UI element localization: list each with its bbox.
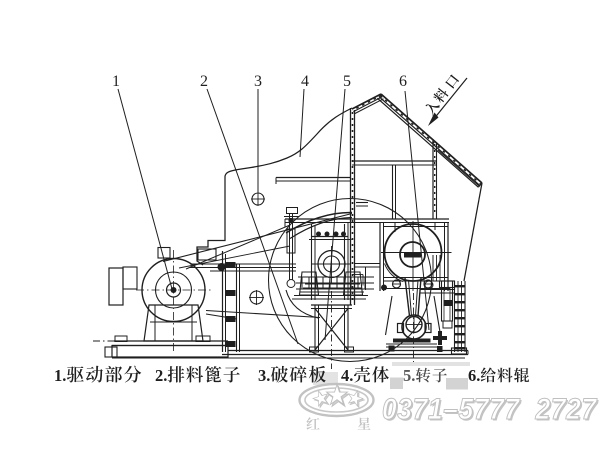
svg-text:3: 3: [254, 73, 262, 90]
svg-text:4: 4: [301, 73, 309, 90]
svg-text:6.: 6.: [468, 366, 480, 385]
svg-text:5.: 5.: [403, 366, 415, 385]
svg-text:6: 6: [399, 73, 407, 90]
svg-text:2: 2: [200, 73, 208, 90]
svg-text:0371–5777 2727: 0371–5777 2727: [382, 393, 597, 426]
svg-text:4.: 4.: [341, 366, 353, 385]
svg-text:5: 5: [343, 73, 351, 90]
svg-text:1: 1: [112, 73, 120, 90]
svg-text:1.: 1.: [54, 366, 66, 385]
svg-text:2.: 2.: [155, 366, 167, 385]
svg-text:3.: 3.: [258, 366, 270, 385]
